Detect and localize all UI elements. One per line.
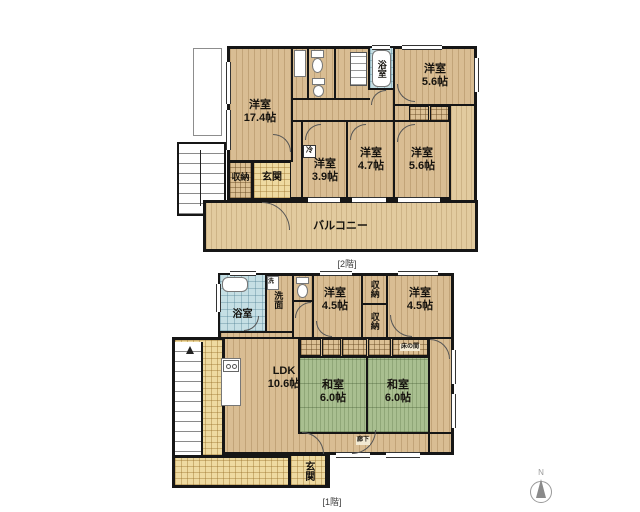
roof-void-outline (193, 48, 222, 136)
balcony-right-strip (449, 104, 477, 203)
staircase-1f (175, 342, 203, 462)
room-size: 5.6帖 (409, 160, 435, 173)
sliding-door (308, 197, 340, 203)
room-size: 6.0帖 (385, 392, 411, 405)
window (451, 350, 456, 384)
room-size: 4.7帖 (358, 160, 384, 173)
sliding-door (398, 197, 440, 203)
window (320, 271, 352, 276)
wall (218, 337, 454, 339)
sliding-door (352, 197, 386, 203)
toilet-2f-second-tank (312, 78, 325, 85)
tokonoma-alcove: 床の間 (392, 339, 428, 356)
closet-1f-a (300, 339, 321, 356)
wall (291, 46, 293, 162)
room-label-storage-top: 収納 (365, 275, 384, 303)
room-size: 4.5帖 (407, 300, 433, 313)
sliding-door (386, 452, 420, 458)
room-label-storage-bottom: 収納 (365, 307, 384, 335)
compass: N (523, 468, 559, 510)
room-label-hallway: 廊下 (350, 436, 376, 446)
stove-burner (226, 364, 231, 369)
closet-1f-d (368, 339, 391, 356)
room-size: 17.4帖 (244, 112, 276, 125)
room-name: 洋室 (411, 147, 433, 160)
wall (227, 160, 293, 162)
wall (334, 46, 336, 98)
room-name: 和室 (387, 379, 409, 392)
wall (361, 273, 363, 337)
room-name: 洋室 (409, 287, 431, 300)
wall (393, 104, 451, 106)
window (398, 271, 438, 276)
room-name: 洋室 (324, 287, 346, 300)
room-label-japanese-left: 和室 6.0帖 (300, 375, 366, 409)
floor-1-caption: [1階] (275, 495, 389, 506)
wall (292, 273, 294, 337)
room-name: 収納 (369, 280, 380, 298)
room-label-western-4-5-right: 洋室 4.5帖 (388, 284, 452, 316)
compass-north-label: N (523, 468, 559, 478)
wall (218, 331, 294, 333)
room-label-western-5-6-top: 洋室 5.6帖 (395, 60, 475, 92)
toilet-2f-tank (311, 50, 324, 58)
window (451, 394, 456, 428)
room-label-western-5-6-right: 洋室 5.6帖 (395, 144, 449, 176)
room-label-western-4-5-left: 洋室 4.5帖 (310, 284, 360, 316)
floor-2-caption: [2階] (290, 257, 404, 268)
room-label-storage-2f: 収納 (229, 170, 252, 184)
entrance-1f: 玄関 (288, 453, 328, 488)
room-name: 収納 (231, 172, 249, 183)
room-size: 6.0帖 (320, 392, 346, 405)
room-name: 玄関 (262, 172, 282, 184)
room-size: 3.9帖 (312, 171, 338, 184)
stove-icon (223, 360, 239, 372)
compass-needle-icon (536, 479, 546, 498)
room-name: 廊下 (356, 437, 370, 444)
closet-1f-b (322, 339, 341, 356)
room-label-western-3-9: 洋室 3.9帖 (303, 155, 347, 187)
closet-1f-c (342, 339, 367, 356)
closet-2f-a (409, 106, 429, 121)
wall (361, 303, 388, 305)
toilet-2f-second-bowl (313, 85, 324, 97)
bathtub-1f (222, 277, 248, 292)
wall (293, 98, 370, 100)
wall (298, 356, 428, 358)
stove-burner (232, 364, 237, 369)
window (230, 271, 256, 276)
room-size: 4.5帖 (322, 300, 348, 313)
staircase-2f-rail (200, 150, 201, 206)
closet-2f-b (430, 106, 449, 121)
wall (291, 120, 451, 122)
room-label-western-17-4: 洋室 17.4帖 (229, 96, 291, 128)
room-name: 収納 (369, 312, 380, 330)
room-name: 洋室 (360, 147, 382, 160)
stairs-up-arrow (186, 346, 194, 354)
room-label-washroom: 洗面 (270, 282, 286, 318)
floor-plan-canvas: バルコニー 冷 (0, 0, 640, 512)
room-name: LDK (273, 365, 296, 378)
balcony-label: バルコニー (313, 220, 368, 233)
room-label-japanese-right: 和室 6.0帖 (368, 375, 428, 409)
room-label-bath-2f: 浴室 (370, 50, 393, 88)
wall (307, 46, 309, 98)
washbasin-2f (294, 50, 306, 77)
room-name: 和室 (322, 379, 344, 392)
room-name: 玄関 (302, 461, 314, 481)
window (402, 45, 442, 50)
linen-shelf-2f (350, 52, 367, 86)
toilet-1f-bowl (297, 284, 308, 298)
room-name: 浴室 (376, 60, 387, 78)
room-label-western-4-7: 洋室 4.7帖 (348, 144, 394, 176)
room-label-entrance-2f: 玄関 (253, 171, 291, 185)
window (216, 284, 221, 312)
floor-2-plan: バルコニー 冷 (0, 0, 640, 270)
room-name: 洋室 (314, 158, 336, 171)
room-size: 5.6帖 (422, 76, 448, 89)
toilet-2f-bowl (312, 58, 323, 73)
room-size: 10.6帖 (268, 378, 300, 391)
balcony: バルコニー (203, 200, 478, 252)
room-name: 床の間 (400, 344, 420, 351)
room-name: 洋室 (424, 63, 446, 76)
wall (298, 432, 454, 434)
toilet-1f-tank (296, 277, 309, 284)
room-name: 洗面 (273, 291, 284, 309)
room-name: 洋室 (249, 99, 271, 112)
